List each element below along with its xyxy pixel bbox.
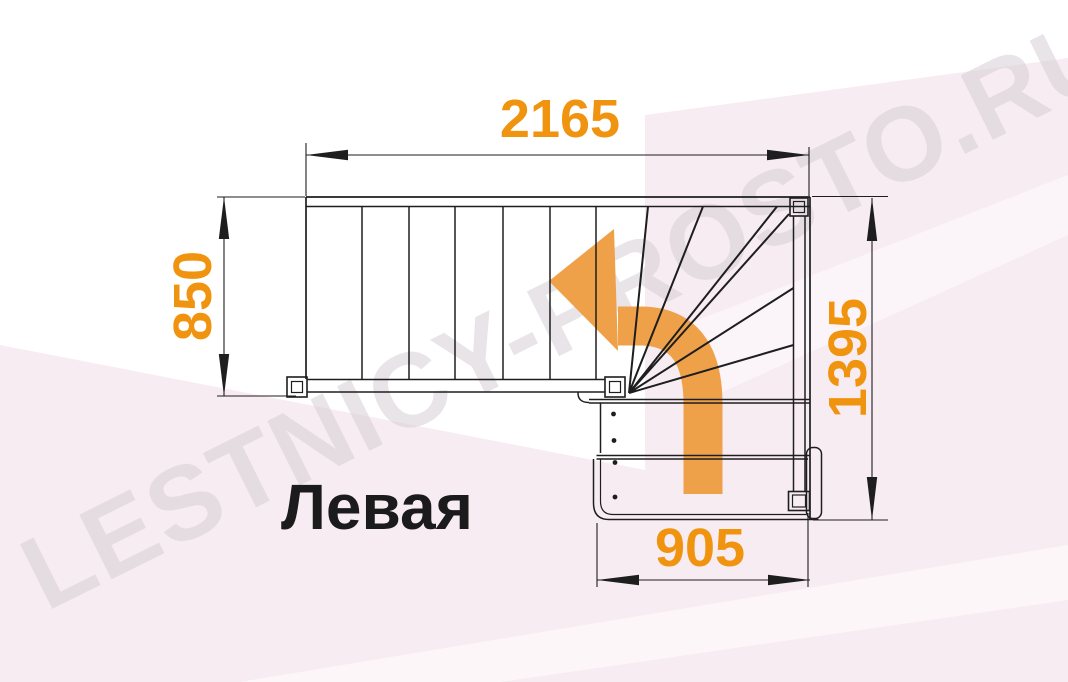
dimension-left-value: 850 — [163, 251, 223, 341]
dimension-bottom-value: 905 — [655, 518, 745, 578]
dimension-right-value: 1395 — [818, 298, 878, 418]
stair-plan-svg: LESTNICY-PROSTO.RU — [0, 0, 1068, 682]
plan-label: Левая — [281, 471, 473, 543]
baluster-dot — [612, 438, 617, 443]
baluster-dot — [613, 495, 618, 500]
baluster-dot — [611, 412, 616, 417]
stair-plan-canvas: LESTNICY-PROSTO.RU — [0, 0, 1068, 682]
dimension-top-value: 2165 — [500, 89, 620, 149]
baluster-dot — [613, 460, 618, 465]
